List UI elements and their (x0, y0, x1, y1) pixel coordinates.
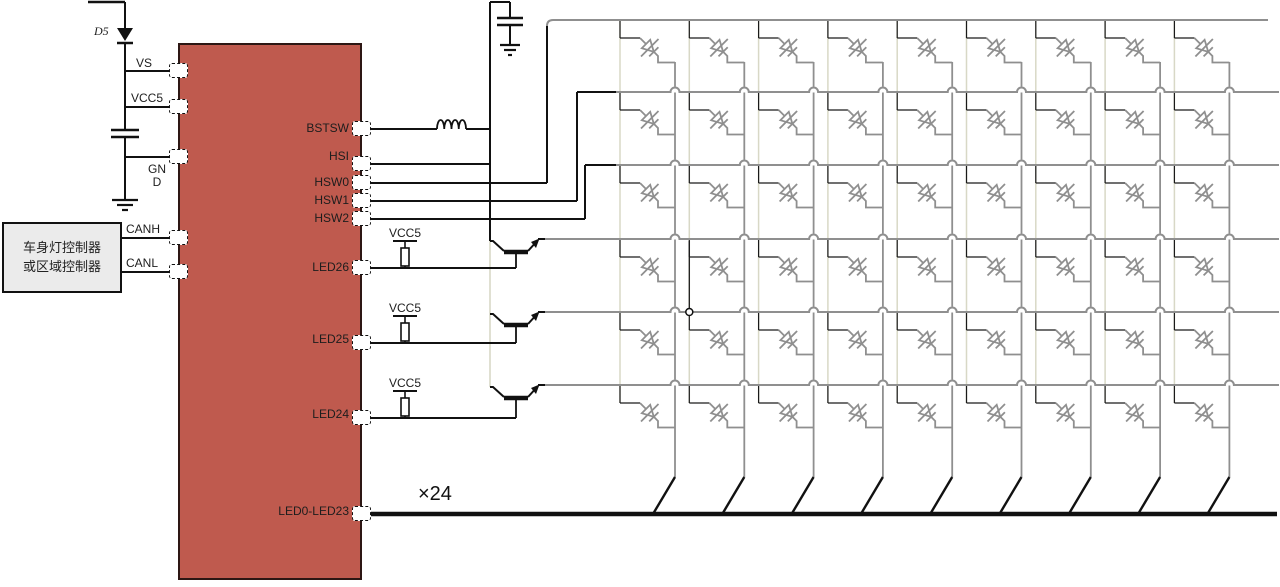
led-symbol (1194, 257, 1229, 282)
led-symbol (917, 257, 952, 282)
column-return-diagonal (1207, 477, 1229, 514)
can-controller-line2: 或区域控制器 (23, 258, 101, 277)
resistor-icon (401, 323, 409, 341)
led-symbol (1125, 257, 1160, 282)
row-rail-2 (614, 88, 1279, 93)
led-symbol (640, 403, 675, 428)
led-symbol (779, 403, 814, 428)
led-symbol (1194, 330, 1229, 355)
diode-d5-icon (117, 28, 133, 41)
led-symbol (1125, 330, 1160, 355)
transistor-collector (490, 241, 504, 251)
led-symbol (779, 330, 814, 355)
led-symbol (987, 110, 1022, 135)
column-return-diagonal (1069, 477, 1091, 514)
led-symbol (1125, 183, 1160, 208)
led-symbol (987, 183, 1022, 208)
led-symbol (640, 257, 675, 282)
row-rail-4 (542, 235, 1279, 240)
led-symbol (987, 38, 1022, 63)
column-return-diagonal (722, 477, 744, 514)
column-return-diagonal (653, 477, 675, 514)
led-symbol (1194, 110, 1229, 135)
led-symbol (779, 38, 814, 63)
transistor-collector (490, 314, 504, 324)
column-return-diagonal (792, 477, 814, 514)
led-symbol (779, 183, 814, 208)
can-controller-box: 车身灯控制器 或区域控制器 (2, 222, 122, 293)
led-symbol (848, 330, 883, 355)
led-symbol (987, 330, 1022, 355)
led-symbol (1194, 403, 1229, 428)
led-symbol (1056, 110, 1091, 135)
led-symbol (917, 330, 952, 355)
led-symbol (709, 110, 744, 135)
led-symbol (640, 38, 675, 63)
transistor-collector (490, 387, 504, 397)
column-return-diagonal (861, 477, 883, 514)
wiring-layer (0, 0, 1280, 587)
led-symbol (1056, 38, 1091, 63)
led-symbol (1056, 330, 1091, 355)
resistor-icon (401, 398, 409, 416)
led-symbol (1194, 183, 1229, 208)
led-symbol (848, 257, 883, 282)
led-symbol (917, 38, 952, 63)
led-symbol (848, 38, 883, 63)
led-symbol (709, 257, 744, 282)
inductor-icon (437, 120, 466, 129)
led-symbol (917, 183, 952, 208)
led-symbol (640, 110, 675, 135)
schematic-canvas: 车身灯控制器 或区域控制器 VSVCC5GNDCANHCANLBSTSWHSIH… (0, 0, 1280, 587)
led-symbol (1125, 38, 1160, 63)
resistor-icon (401, 248, 409, 266)
column-return-diagonal (930, 477, 952, 514)
led-symbol (779, 257, 814, 282)
row-rail-6 (542, 381, 1279, 386)
led-symbol (1056, 257, 1091, 282)
led-symbol (987, 257, 1022, 282)
column-return-diagonal (1138, 477, 1160, 514)
led-symbol (779, 110, 814, 135)
led-symbol (1125, 403, 1160, 428)
led-symbol (709, 183, 744, 208)
led-symbol (848, 403, 883, 428)
column-return-diagonal (1000, 477, 1022, 514)
row-rail-3 (614, 161, 1279, 166)
row-rail-5 (542, 308, 1279, 313)
led-symbol (709, 403, 744, 428)
led-symbol (917, 403, 952, 428)
led-symbol (709, 38, 744, 63)
led-symbol (1056, 403, 1091, 428)
junction-dot (686, 309, 693, 316)
can-controller-line1: 车身灯控制器 (23, 239, 101, 258)
led-symbol (640, 183, 675, 208)
led-symbol (640, 330, 675, 355)
led-symbol (1056, 183, 1091, 208)
led-symbol (1194, 38, 1229, 63)
led-symbol (709, 330, 744, 355)
row-rail-1 (547, 20, 1268, 26)
led-symbol (1125, 110, 1160, 135)
led-symbol (987, 403, 1022, 428)
led-symbol (848, 110, 883, 135)
led-symbol (848, 183, 883, 208)
led-symbol (917, 110, 952, 135)
